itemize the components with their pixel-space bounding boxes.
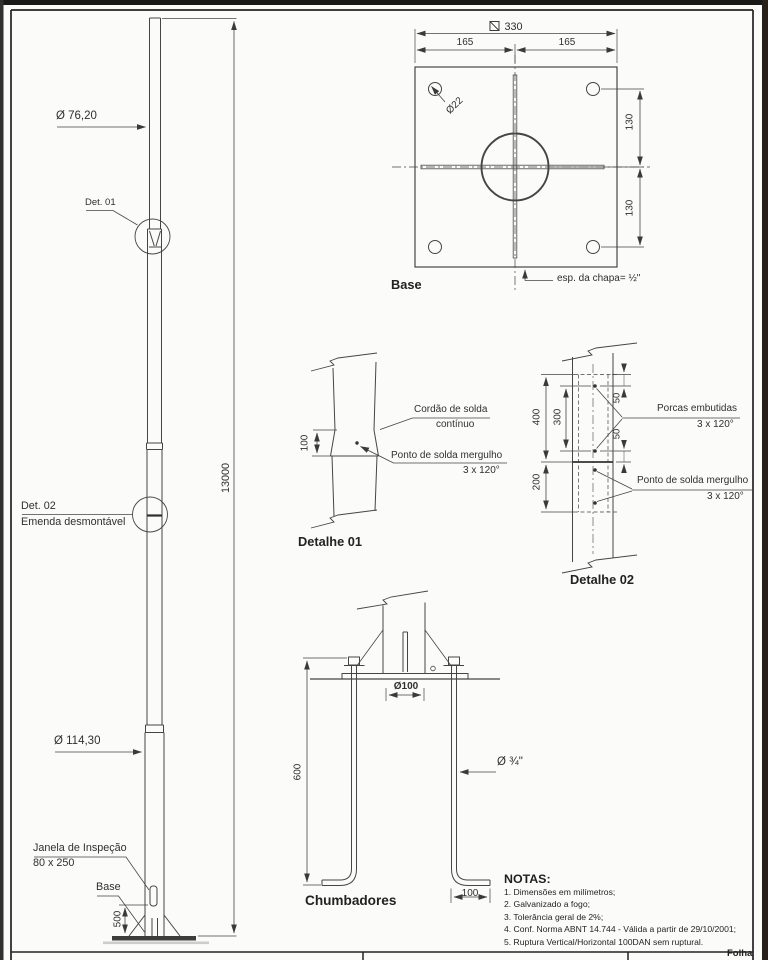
title-block-folha-label: Folha	[727, 949, 752, 960]
pole-height-dimension: 13000	[220, 463, 232, 493]
hole-spacing-lower: 130	[624, 200, 636, 217]
detail01-callout-label: Det. 01	[85, 198, 116, 209]
plate-thickness-label: esp. da chapa= ½"	[557, 273, 640, 285]
detail01-drawing	[311, 353, 507, 528]
removable-splice-label: Emenda desmontável	[21, 516, 125, 528]
detail02-drawing	[541, 343, 752, 573]
detail02-title: Detalhe 02	[570, 573, 634, 588]
dimension-200: 200	[531, 474, 543, 491]
note-item-5: 5. Ruptura Vertical/Horizontal 100DAN se…	[504, 938, 736, 948]
plate-width-dimension: 330	[489, 21, 522, 33]
dimension-400: 400	[531, 409, 543, 426]
anchor-length-dimension: 600	[292, 764, 304, 781]
base-height-dimension: 500	[112, 911, 124, 928]
notes-title: NOTAS:	[504, 872, 551, 886]
dimension-50-top: 50	[613, 393, 624, 404]
pole-bottom-diameter-label: Ø 114,30	[54, 735, 100, 748]
dimension-300: 300	[552, 409, 564, 426]
plate-half-width-right: 165	[559, 37, 576, 49]
detail02-callout-label: Det. 02	[21, 500, 56, 512]
pole-top-diameter-label: Ø 76,20	[56, 110, 97, 123]
continuous-weld-label-line1: Cordão de solda	[414, 404, 487, 416]
anchor-circle-diameter: Ø100	[394, 681, 418, 693]
note-item-1: 1. Dimensões em milímetros;	[504, 888, 736, 898]
drawing-sheet: Ø 76,20 Det. 01 Det. 02 Emenda desmontáv…	[0, 0, 768, 960]
hole-spacing-upper: 130	[624, 114, 636, 131]
plug-weld-label2-line1: Ponto de solda mergulho	[637, 475, 748, 487]
overlap-dimension: 100	[299, 435, 311, 452]
base-plate-plan-drawing	[392, 29, 650, 292]
base-view-title: Base	[391, 278, 422, 293]
anchors-title: Chumbadores	[305, 893, 396, 909]
dimension-50-bottom: 50	[613, 429, 624, 440]
pole-base-callout-label: Base	[96, 881, 121, 893]
inspection-window-label: Janela de Inspeção	[33, 842, 127, 854]
embedded-nuts-label-line2: 3 x 120°	[697, 419, 734, 431]
inspection-window-size: 80 x 250	[33, 857, 74, 869]
plug-weld-label-line2: 3 x 120°	[463, 465, 500, 477]
plug-weld-label-line1: Ponto de solda mergulho	[391, 450, 502, 462]
pole-elevation-drawing	[22, 18, 237, 944]
square-symbol-icon	[489, 21, 499, 31]
embedded-nuts-label-line1: Porcas embutidas	[657, 403, 737, 415]
anchor-bolts-drawing	[303, 591, 500, 903]
notes-list: 1. Dimensões em milímetros; 2. Galvaniza…	[504, 888, 736, 950]
note-item-2: 2. Galvanizado a fogo;	[504, 900, 736, 910]
anchor-bolt-diameter: Ø ¾"	[497, 756, 523, 769]
detail01-title: Detalhe 01	[298, 535, 362, 550]
anchor-hook-dimension: 100	[462, 888, 479, 900]
plate-half-width-left: 165	[457, 37, 474, 49]
continuous-weld-label-line2: contínuo	[436, 419, 474, 431]
note-item-4: 4. Conf. Norma ABNT 14.744 - Válida a pa…	[504, 925, 736, 935]
note-item-3: 3. Tolerância geral de 2%;	[504, 913, 736, 923]
plug-weld-label2-line2: 3 x 120°	[707, 491, 744, 503]
